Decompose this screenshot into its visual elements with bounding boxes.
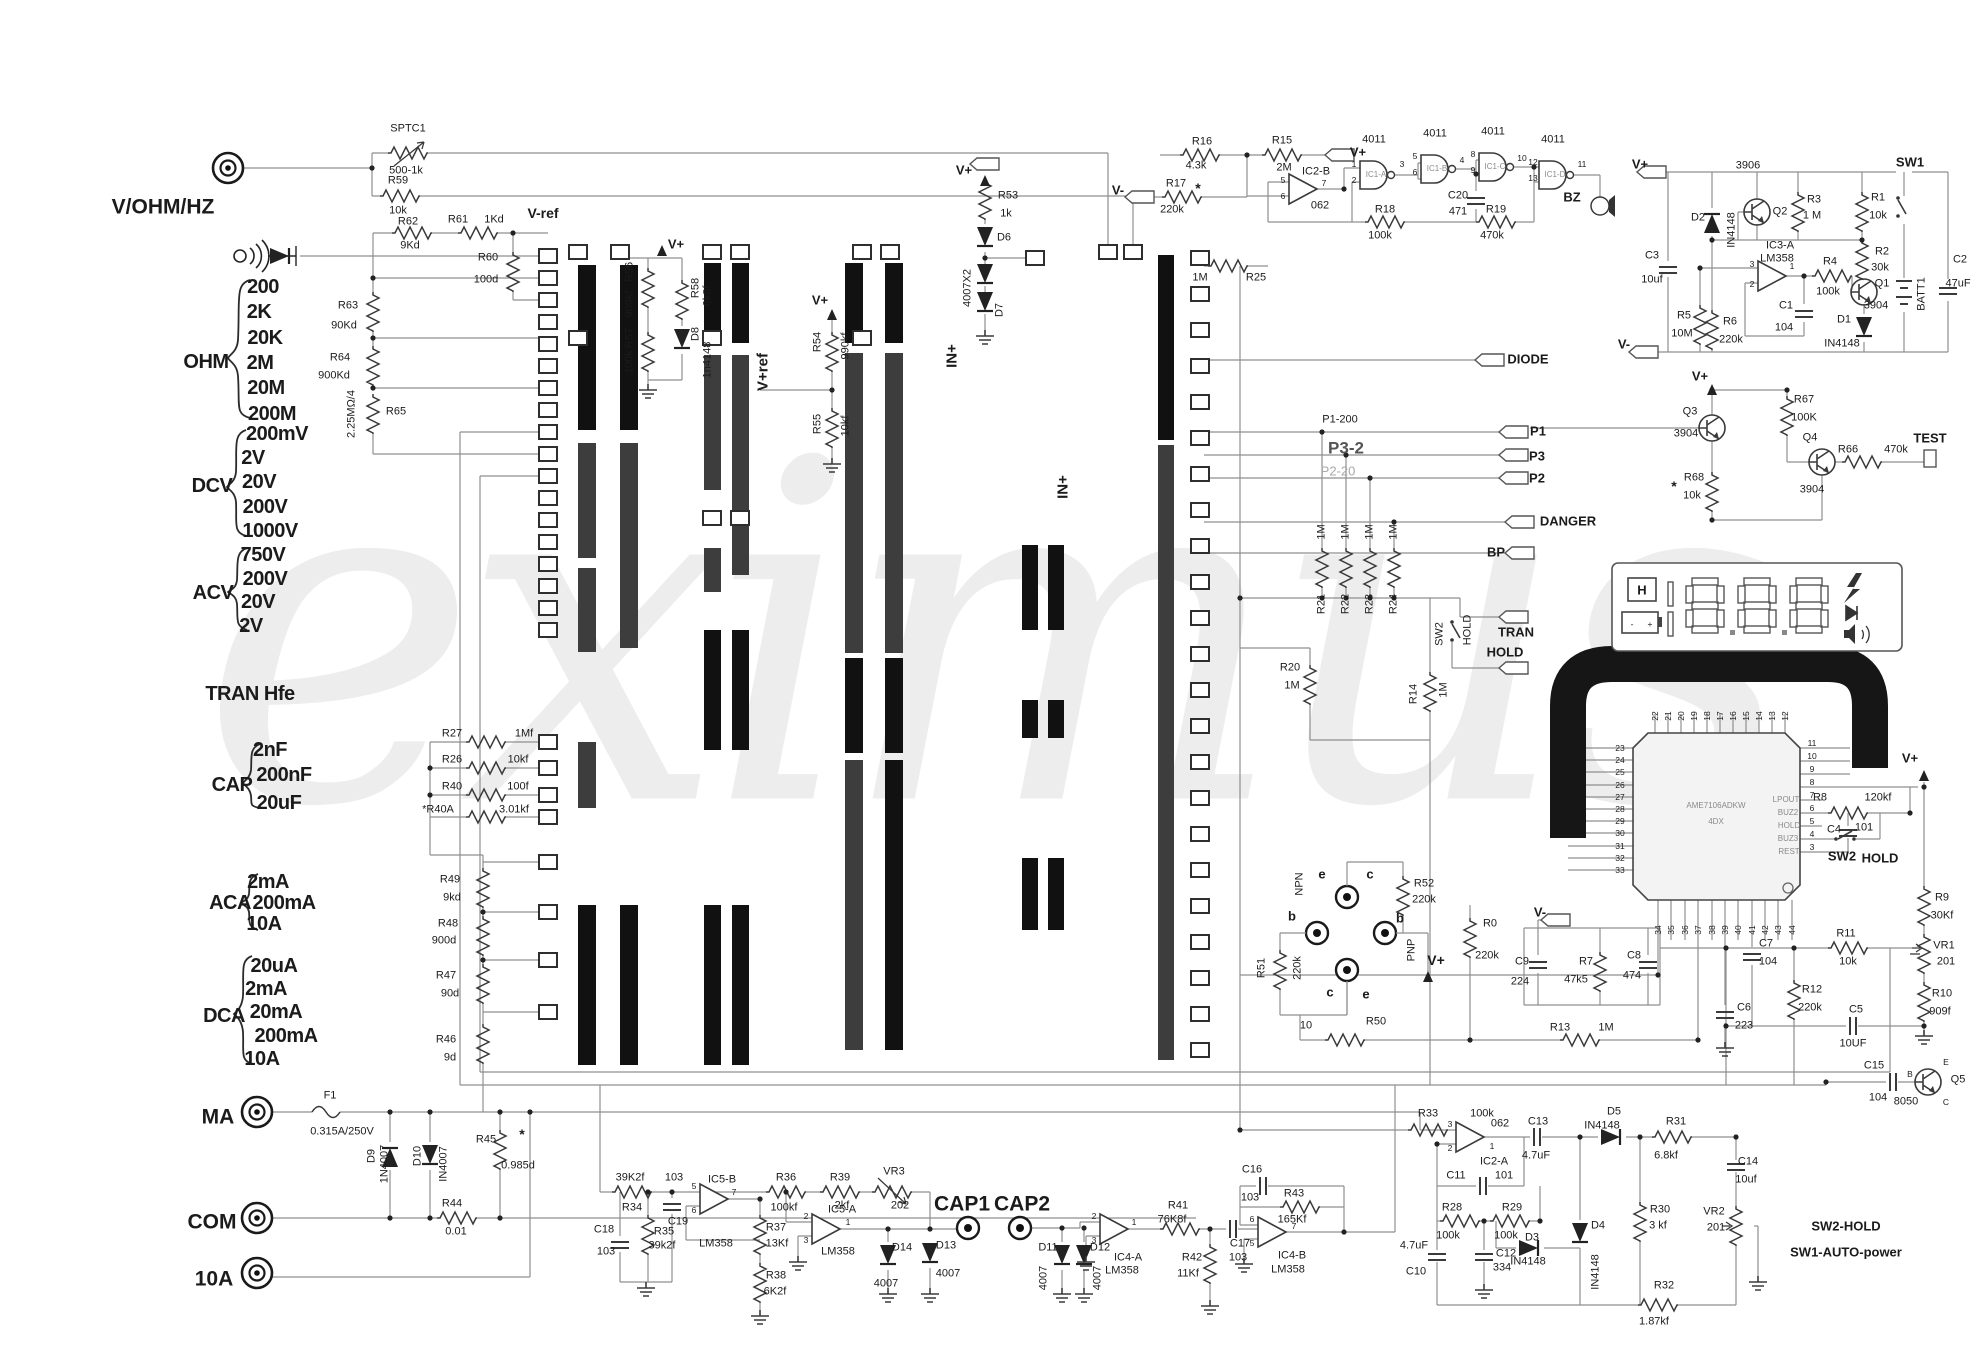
adc_input-label: D7 <box>995 303 1006 317</box>
adc_chip-label: 120kf <box>1865 793 1892 804</box>
right_rc-label: C <box>1943 1098 1949 1107</box>
mid_flags-label: P2 <box>1529 472 1545 485</box>
schematic-canvas: eximus <box>0 0 1975 1353</box>
mid_flags-label: R14 <box>1409 684 1420 704</box>
vref_network-label: R57 <box>625 328 636 348</box>
buzzer_logic-label: 4 <box>1460 156 1465 165</box>
buzzer_logic-label: R17 <box>1166 179 1186 190</box>
freq_section-label: LM358 <box>1105 1266 1139 1277</box>
adc_chip-label: BUZ2 <box>1778 809 1798 817</box>
right_rc-label: VR1 <box>1933 941 1954 952</box>
freq_section-label: D14 <box>892 1243 912 1254</box>
freq_section-label: 39k2f <box>649 1241 676 1252</box>
mid_flags-label: R23 <box>1365 594 1376 614</box>
transistor_socket-label: R52 <box>1414 879 1434 890</box>
freq_section-label: 6 <box>1250 1215 1255 1224</box>
freq_section-label: R41 <box>1168 1201 1188 1212</box>
power_section-label: R2 <box>1875 247 1889 258</box>
freq_section-label: 3 <box>1092 1236 1097 1245</box>
pwm_section-label: R29 <box>1502 1203 1522 1214</box>
top_network-label: R59 <box>388 176 408 187</box>
fuse_input-label: D9 <box>367 1149 378 1163</box>
buzzer_logic-label: V+ <box>1350 146 1366 159</box>
adc_chip-label: 23 <box>1615 744 1624 753</box>
fuse_input-label: IN4007 <box>439 1146 450 1181</box>
vref_network-label: R56 <box>625 262 636 282</box>
adc_chip-label: 9 <box>1810 765 1815 774</box>
pwm_section-label: 2 <box>1448 1144 1453 1153</box>
right_rc-label: C7 <box>1759 939 1773 950</box>
adc_chip-label: 41 <box>1748 925 1757 934</box>
ranges-label: 20V <box>241 592 275 612</box>
adc_chip-label: HOLD <box>1778 822 1800 830</box>
power_section-label: 1 <box>1790 262 1795 271</box>
right_rc-label: V- <box>1534 906 1546 919</box>
adc_chip-label: 33 <box>1615 866 1624 875</box>
mid_flags-label: 1M <box>1389 524 1400 539</box>
adc_input-label: D6 <box>997 233 1011 244</box>
adc_input-label: 4007X2 <box>963 269 974 307</box>
buzzer_logic-label: R19 <box>1486 205 1506 216</box>
freq_section-label: 4007 <box>936 1269 960 1280</box>
right_rc-label: R10 <box>1932 989 1952 1000</box>
buzzer_logic-label: 8 <box>1471 150 1476 159</box>
adc_chip-label: R8 <box>1813 793 1827 804</box>
right_rc-label: E <box>1943 1058 1949 1067</box>
mid_flags-label: DIODE <box>1507 353 1548 366</box>
buzzer_logic-label: 9 <box>1471 166 1476 175</box>
fuse_input-label: D10 <box>413 1146 424 1166</box>
power_section-label: 3 <box>1750 260 1755 269</box>
buzzer_logic-label: 4011 <box>1541 135 1565 146</box>
adc_chip-label: 5 <box>1810 817 1815 826</box>
freq_section-label: 1 <box>1132 1218 1137 1227</box>
mid_flags-label: R20 <box>1280 663 1300 674</box>
terminals-label: MA <box>202 1107 235 1128</box>
buzzer_logic-label: IC1-A <box>1366 171 1386 179</box>
top_network-label: 2.25MΩ/4 <box>347 390 358 438</box>
buzzer_logic-label: 12 <box>1528 158 1537 167</box>
adc_chip-label: 3 <box>1810 843 1815 852</box>
buzzer_logic-label: C20 <box>1448 191 1468 202</box>
freq_section-label: LM358 <box>699 1239 733 1250</box>
freq_section-label: 5 <box>692 1182 697 1191</box>
buzzer_logic-label: 062 <box>1311 201 1329 212</box>
ranges-label: 10A <box>244 1049 279 1069</box>
cap_current_network-label: 10kf <box>508 755 529 766</box>
freq_section-label: 11Kf <box>1177 1269 1199 1280</box>
terminals-label: 10A <box>195 1269 234 1290</box>
transistor_socket-label: b <box>1396 912 1404 925</box>
terminals-label: V/OHM/HZ <box>112 197 215 218</box>
transistor_socket-label: PNP <box>1407 939 1418 962</box>
ranges-label: 200mA <box>254 1026 317 1046</box>
freq_section-label: C18 <box>594 1225 614 1236</box>
buzzer_logic-label: 4011 <box>1362 135 1386 146</box>
adc_chip-label: BUZ3 <box>1778 835 1798 843</box>
buzzer_logic-label: 13 <box>1528 174 1537 183</box>
adc_chip-label: V+ <box>1902 752 1918 765</box>
pwm_section-label: 100k <box>1436 1231 1460 1242</box>
buzzer_logic-label: 1 <box>1352 160 1357 169</box>
power_section-label: R3 <box>1807 195 1821 206</box>
right_rc-label: 909f <box>1929 1007 1950 1018</box>
pwm_section-label: 4.7uF <box>1400 1241 1428 1252</box>
vref_network-label: 1n4148 <box>703 342 714 379</box>
pwm_section-label: R28 <box>1442 1203 1462 1214</box>
right_rc-label: R11 <box>1836 929 1855 940</box>
adc_chip-label: 43 <box>1774 925 1783 934</box>
adc_chip-label: 20 <box>1677 711 1686 720</box>
ranges-label: DCA <box>203 1006 245 1026</box>
transistor_socket-label: 10 <box>1300 1021 1312 1032</box>
buzzer_logic-label: IC1-C <box>1485 163 1506 171</box>
freq_section-label: R35 <box>654 1227 674 1238</box>
right_rc-label: C15 <box>1864 1061 1884 1072</box>
buzzer_logic-label: 10 <box>1517 154 1526 163</box>
power_section-label: 220k <box>1719 335 1743 346</box>
buzzer_logic-label: 1M <box>1192 273 1207 284</box>
q3q4-label: V+ <box>1692 370 1708 383</box>
buzzer_logic-label: 3 <box>1400 160 1405 169</box>
buzzer_logic-label: 100k <box>1368 231 1392 242</box>
freq_section-label: 202 <box>891 1201 909 1212</box>
right_rc-label: 474 <box>1623 971 1641 982</box>
vref_network-label: IN+ <box>1056 475 1071 499</box>
power_section-label: 10M <box>1671 329 1692 340</box>
freq_section-label: R36 <box>776 1173 796 1184</box>
ranges-label: 200mV <box>246 424 308 444</box>
adc_chip-label: 26 <box>1615 781 1624 790</box>
right_rc-label: B <box>1907 1070 1913 1079</box>
top_network-label: R65 <box>386 407 406 418</box>
freq_section-label: R34 <box>622 1203 642 1214</box>
freq_section-label: IC4-B <box>1278 1251 1306 1262</box>
freq_section-label: 2 <box>1092 1212 1097 1221</box>
ranges-label: 200 <box>247 277 279 297</box>
freq_section-label: R42 <box>1182 1253 1202 1264</box>
mid_flags-label: BP <box>1487 546 1505 559</box>
pwm_section-label: R30 <box>1650 1205 1670 1216</box>
freq_section-label: 7 <box>732 1188 737 1197</box>
freq_section-label: D13 <box>936 1241 956 1252</box>
power_section-label: Q2 <box>1773 207 1788 218</box>
right_rc-label: 47k5 <box>1564 975 1588 986</box>
ranges-label: 10A <box>246 914 281 934</box>
right_rc-label: 104 <box>1759 957 1777 968</box>
right_rc-label: C6 <box>1737 1003 1751 1014</box>
power_section-label: IN4148 <box>1727 212 1738 247</box>
display-label: - <box>1631 620 1634 629</box>
pwm_section-label: C11 <box>1446 1171 1465 1182</box>
freq_section-label: 76K8f <box>1158 1215 1187 1226</box>
top_network-label: R60 <box>478 253 498 264</box>
power_section-label: Q1 <box>1875 279 1890 290</box>
cap_current_network-label: 9kd <box>443 893 461 904</box>
q3q4-label: Q3 <box>1683 407 1698 418</box>
right_rc-label: 8050 <box>1894 1097 1918 1108</box>
pwm_section-label: C13 <box>1528 1117 1548 1128</box>
adc_chip-label: 40 <box>1734 925 1743 934</box>
fuse_input-label: 1N4007 <box>380 1145 391 1184</box>
freq_section-label: D11 <box>1038 1243 1057 1254</box>
buzzer_logic-label: IC2-B <box>1302 167 1330 178</box>
adc_chip-label: 101 <box>1855 823 1873 834</box>
mid_flags-label: TRAN <box>1498 626 1534 639</box>
cap_current_network-label: 100f <box>507 782 528 793</box>
buzzer_logic-label: 4011 <box>1423 129 1447 140</box>
power_section-label: R6 <box>1723 317 1737 328</box>
ranges-label: 20M <box>247 378 284 398</box>
freq_section-label: 6K2f <box>764 1287 787 1298</box>
ranges-label: 20V <box>242 472 276 492</box>
power_section-label: 30k <box>1871 263 1889 274</box>
buzzer_logic-label: R16 <box>1192 137 1212 148</box>
freq_section-label: LM358 <box>821 1247 855 1258</box>
mid_flags-label: P2-20 <box>1321 465 1356 478</box>
top_network-label: 90Kd <box>331 321 357 332</box>
adc_chip-label: 35 <box>1667 925 1676 934</box>
vref_network-label: R55 <box>813 414 824 434</box>
top_network-label: 1Kd <box>484 215 504 226</box>
right_rc-label: R0 <box>1483 919 1497 930</box>
top_network-label: R61 <box>448 215 468 226</box>
pwm_section-label: 334 <box>1493 1263 1511 1274</box>
transistor_socket-label: V+ <box>1427 953 1445 967</box>
top_network-label: R64 <box>330 353 350 364</box>
freq_section-label: C17 <box>1230 1239 1250 1250</box>
buzzer_logic-label: R18 <box>1375 205 1395 216</box>
pwm_section-label: D3 <box>1525 1233 1539 1244</box>
right_rc-label: R7 <box>1579 957 1593 968</box>
adc_chip-label: 38 <box>1708 925 1717 934</box>
buzzer_logic-label: R15 <box>1272 136 1292 147</box>
ranges-label: 20uA <box>251 956 298 976</box>
pwm_section-label: 1.87kf <box>1639 1317 1669 1328</box>
ranges-label: 2V <box>241 448 264 468</box>
fuse_input-label: 0.315A/250V <box>310 1127 374 1138</box>
power_section-label: C2 <box>1953 255 1967 266</box>
vref_network-label: V+ <box>812 294 828 307</box>
pwm_section-label: C10 <box>1406 1267 1426 1278</box>
mid_flags-label: P1 <box>1530 425 1546 438</box>
freq_section-label: IC5-A <box>828 1205 856 1216</box>
fuse_input-label: R45 <box>476 1135 496 1146</box>
cap_current_network-label: 900d <box>432 936 456 947</box>
ranges-label: 2M <box>247 353 274 373</box>
q3q4-label: TEST <box>1913 432 1946 445</box>
adc_chip-label: 39 <box>1721 925 1730 934</box>
ranges-label: TRAN Hfe <box>205 684 294 704</box>
adc_chip-label: 14 <box>1755 711 1764 720</box>
ranges-label: ACA <box>209 893 251 913</box>
freq_section-label: 2 <box>804 1212 809 1221</box>
power_section-label: V- <box>1618 338 1630 351</box>
adc_chip-label: 17 <box>1716 711 1725 720</box>
cap_current_network-label: 1Mf <box>515 729 533 740</box>
freq_section-label: R38 <box>766 1271 786 1282</box>
freq_section-label: R43 <box>1284 1189 1304 1200</box>
mid_flags-label: DANGER <box>1540 515 1596 528</box>
mid_flags-label: HOLD <box>1463 615 1474 646</box>
buzzer_logic-label: 5 <box>1413 152 1418 161</box>
freq_section-label: 1 <box>846 1218 851 1227</box>
adc_chip-label: 25 <box>1615 768 1624 777</box>
buzzer_logic-label: 471 <box>1449 207 1467 218</box>
q3q4-label: R68 <box>1684 473 1704 484</box>
cap_current_network-label: R27 <box>442 729 462 740</box>
freq_section-label: 103 <box>597 1247 615 1258</box>
pwm_section-label: IN4148 <box>1510 1257 1545 1268</box>
top_network-label: 100d <box>474 275 498 286</box>
vref_network-label: 10kf <box>841 416 852 437</box>
power_section-label: 100k <box>1816 287 1840 298</box>
freq_section-label: 13Kf <box>766 1239 789 1250</box>
adc_chip-label: 10 <box>1807 752 1816 761</box>
top_network-label: SPTC1 <box>390 124 425 135</box>
right_rc-label: 30Kf <box>1931 911 1954 922</box>
ranges-label: 20uF <box>257 793 302 813</box>
adc_chip-label: 15 <box>1742 711 1751 720</box>
power_section-label: R1 <box>1871 193 1885 204</box>
ranges-label: 2mA <box>245 979 287 999</box>
display-label: H <box>1637 584 1646 597</box>
adc_chip-label: LPOUT <box>1773 796 1800 804</box>
right_rc-label: 104 <box>1869 1093 1887 1104</box>
freq_section-label: 4007 <box>1039 1266 1050 1290</box>
power_section-label: 47uF <box>1945 279 1970 290</box>
adc_chip-label: C4 <box>1827 825 1841 836</box>
vref_network-label: V+ <box>668 238 684 251</box>
ranges-label: 200nF <box>256 765 311 785</box>
adc_chip-label: 12 <box>1781 711 1790 720</box>
freq_section-label: VR3 <box>883 1167 904 1178</box>
pwm_section-label: C14 <box>1738 1157 1758 1168</box>
right_rc-label: 223 <box>1735 1021 1753 1032</box>
pwm_section-label: SW1-AUTO-power <box>1790 1246 1902 1259</box>
power_section-label: R5 <box>1677 311 1691 322</box>
pwm_section-label: SW2-HOLD <box>1811 1220 1880 1233</box>
vref_network-label: D8 <box>691 327 702 341</box>
ranges-label: OHM <box>183 352 228 372</box>
power_section-label: R4 <box>1823 257 1837 268</box>
top_network-label: R62 <box>398 217 418 228</box>
transistor_socket-label: R51 <box>1257 958 1268 978</box>
adc_chip-label: 4 <box>1810 830 1815 839</box>
transistor_socket-label: 220k <box>1293 956 1304 980</box>
pwm_section-label: 4.7uF <box>1522 1151 1550 1162</box>
pwm_section-label: 6.8kf <box>1654 1151 1678 1162</box>
ranges-label: 20K <box>247 328 282 348</box>
ranges-label: 2mA <box>247 872 289 892</box>
mid_flags-label: P3 <box>1529 450 1545 463</box>
terminals-label: COM <box>188 1212 237 1233</box>
pwm_section-label: R31 <box>1666 1117 1686 1128</box>
vref_network-label: R58 <box>691 278 702 298</box>
power_section-label: 1 M <box>1803 211 1821 222</box>
freq_section-label: 103 <box>1229 1253 1247 1264</box>
ranges-label: 200M <box>248 404 296 424</box>
buzzer_logic-label: 220k <box>1160 205 1184 216</box>
pwm_section-label: IN4148 <box>1584 1121 1619 1132</box>
cap_current_network-label: R48 <box>438 919 458 930</box>
freq_section-label: 39K2f <box>616 1173 645 1184</box>
q3q4-label: 3904 <box>1674 429 1698 440</box>
adc_chip-label: 29 <box>1615 817 1624 826</box>
q3q4-label: 470k <box>1884 445 1908 456</box>
buzzer_logic-label: 4.3k <box>1186 161 1207 172</box>
buzzer_logic-label: 7 <box>1322 179 1327 188</box>
mid_flags-label: 1M <box>1439 682 1450 697</box>
buzzer_logic-label: BZ <box>1563 191 1580 204</box>
buzzer_logic-label: 2M <box>1276 163 1291 174</box>
pwm_section-label: 201 <box>1707 1223 1725 1234</box>
adc_chip-label: 6 <box>1810 804 1815 813</box>
display-label: + <box>1648 620 1653 629</box>
top_network-label: 9Kd <box>400 241 420 252</box>
freq_section-label: 103 <box>665 1173 683 1184</box>
adc_chip-label: 18 <box>1703 711 1712 720</box>
power_section-label: BATT1 <box>1917 277 1928 310</box>
ranges-label: DCV <box>192 476 233 496</box>
power_section-label: 3904 <box>1864 301 1888 312</box>
fuse_input-label: 0.985d <box>501 1161 535 1172</box>
adc_chip-label: HOLD <box>1862 852 1899 865</box>
pwm_section-label: 3 kf <box>1649 1221 1667 1232</box>
right_rc-label: R9 <box>1935 893 1949 904</box>
pwm_section-label: 101 <box>1495 1171 1513 1182</box>
adc_chip-label: 16 <box>1729 711 1738 720</box>
mid_flags-label: P3-2 <box>1328 440 1364 457</box>
cap_current_network-label: R40 <box>442 782 462 793</box>
right_rc-label: R13 <box>1550 1023 1570 1034</box>
buzzer_logic-label: 4011 <box>1481 127 1505 138</box>
terminals-label: CAP1 <box>934 1194 990 1215</box>
vref_network-label: 909kf <box>625 291 636 318</box>
adc_chip-label: 34 <box>1654 925 1663 934</box>
buzzer_logic-label: 2 <box>1352 176 1357 185</box>
mid_flags-label: 1M <box>1284 681 1299 692</box>
power_section-label: 104 <box>1775 323 1793 334</box>
q3q4-label: Q4 <box>1803 433 1818 444</box>
cap_current_network-label: R49 <box>440 875 460 886</box>
power_section-label: IC3-A <box>1766 241 1794 252</box>
transistor_socket-label: c <box>1326 986 1333 999</box>
adc_chip-label: 44 <box>1788 925 1797 934</box>
mid_flags-label: R24 <box>1389 594 1400 614</box>
q3q4-label: 10k <box>1683 491 1701 502</box>
buzzer_logic-label: R25 <box>1246 273 1266 284</box>
mid_flags-label: SW2 <box>1435 622 1446 646</box>
transistor_socket-label: e <box>1318 868 1325 881</box>
freq_section-label: 6 <box>692 1206 697 1215</box>
power_section-label: 10k <box>1869 211 1887 222</box>
right_rc-label: 201 <box>1937 957 1955 968</box>
adc_chip-label: SW2 <box>1828 850 1856 863</box>
power_section-label: SW1 <box>1896 156 1924 169</box>
adc_chip-label: 13 <box>1768 711 1777 720</box>
buzzer_logic-label: 11 <box>1578 160 1587 169</box>
ranges-label: 200mA <box>252 893 315 913</box>
adc_chip-label: 19 <box>1690 711 1699 720</box>
terminals-label: CAP2 <box>994 1194 1050 1215</box>
ranges-label: ACV <box>193 583 234 603</box>
right_rc-label: 10UF <box>1840 1039 1867 1050</box>
power_section-label: D1 <box>1837 315 1851 326</box>
pwm_section-label: IN4148 <box>1591 1254 1602 1289</box>
cap_current_network-label: *R40A <box>422 805 454 816</box>
pwm_section-label: 10uf <box>1735 1175 1756 1186</box>
